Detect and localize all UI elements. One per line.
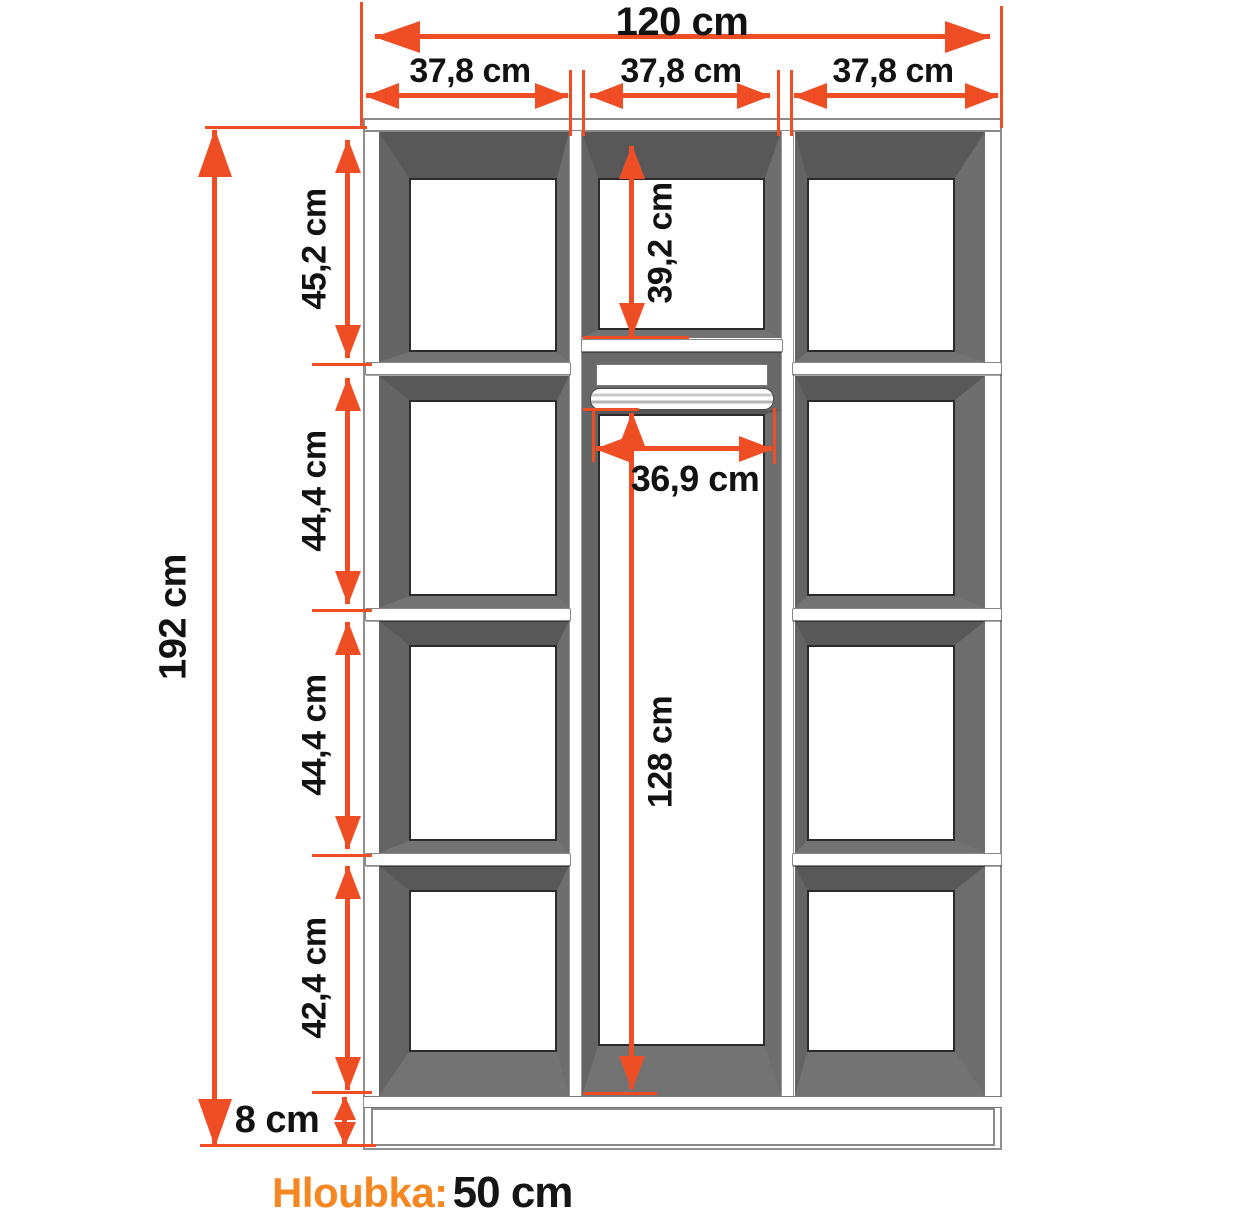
dim-section3-label: 44,4 cm	[296, 674, 335, 795]
dim-total-width-label: 120 cm	[532, 0, 832, 45]
compartment-left-1	[379, 132, 569, 362]
tick-section-4	[312, 1091, 372, 1094]
shelf-right-2	[792, 608, 1002, 621]
wardrobe-top-panel	[363, 118, 1002, 132]
dim-total-height-arrow	[212, 130, 217, 1146]
dim-total-height-label: 192 cm	[153, 554, 196, 680]
tick-section-2	[312, 609, 372, 612]
compartment-right-3	[795, 621, 985, 853]
compartment-left-4	[379, 866, 569, 1096]
dim-section4-label: 42,4 cm	[296, 917, 335, 1038]
shelf-left-2	[365, 608, 571, 621]
wardrobe-plinth	[371, 1108, 995, 1146]
tick-hanging-bottom	[583, 1092, 657, 1095]
dim-section1-label: 45,2 cm	[296, 188, 335, 309]
dim-middle-top-label: 39,2 cm	[642, 182, 681, 303]
dim-section3-arrow	[345, 622, 350, 849]
middle-front-rail	[596, 364, 768, 386]
wardrobe-bottom-edge	[364, 1096, 1002, 1108]
dim-section2-label: 44,4 cm	[296, 430, 335, 551]
shelf-left-1	[365, 362, 571, 375]
dim-col3-width-arrow	[794, 93, 998, 98]
ext-line-divider1-a	[569, 70, 572, 136]
dim-hanging-height-label: 128 cm	[642, 696, 681, 808]
wardrobe-dimension-diagram: 120 cm 37,8 cm 37,8 cm 37,8 cm 192 cm 45…	[0, 0, 1254, 1219]
compartment-left-3	[379, 621, 569, 853]
tick-section-1	[312, 363, 372, 366]
shelf-middle	[581, 339, 783, 352]
shelf-right-1	[792, 362, 1002, 375]
ext-line-divider2-a	[777, 70, 780, 136]
hanging-rod	[590, 388, 774, 410]
ext-line-divider1-b	[582, 70, 585, 136]
compartment-left-2	[379, 376, 569, 608]
depth-value: 50 cm	[453, 1168, 573, 1218]
compartment-middle-top	[582, 132, 781, 338]
dim-col3-width-label: 37,8 cm	[818, 52, 968, 91]
tick-section-3	[312, 854, 372, 857]
compartment-right-4	[795, 866, 985, 1096]
dim-section1-arrow	[345, 140, 350, 358]
ext-line-total-left	[360, 2, 363, 128]
dim-rod-width-label: 36,9 cm	[595, 458, 795, 500]
dim-col1-width-arrow	[366, 93, 568, 98]
compartment-right-1	[795, 132, 985, 362]
dim-col2-width-arrow	[590, 93, 770, 98]
dim-plinth-label: 8 cm	[222, 1099, 332, 1142]
dim-hanging-height-arrow	[629, 413, 634, 1089]
hanging-compartment	[582, 410, 781, 1096]
dim-section4-arrow	[345, 866, 350, 1090]
dim-rod-width-arrow	[596, 446, 772, 451]
depth-label: Hloubka:	[272, 1169, 448, 1217]
dim-middle-top-arrow	[629, 146, 634, 336]
dim-col1-width-label: 37,8 cm	[395, 52, 545, 91]
dim-col2-width-label: 37,8 cm	[606, 52, 756, 91]
shelf-left-3	[365, 853, 571, 866]
dim-section2-arrow	[345, 378, 350, 604]
compartment-right-2	[795, 376, 985, 608]
ext-line-total-right	[1000, 6, 1003, 128]
ext-line-rod-right	[773, 408, 776, 464]
depth-caption: Hloubka: 50 cm	[272, 1168, 572, 1218]
dim-plinth-arrow	[342, 1097, 347, 1145]
shelf-right-3	[792, 853, 1002, 866]
